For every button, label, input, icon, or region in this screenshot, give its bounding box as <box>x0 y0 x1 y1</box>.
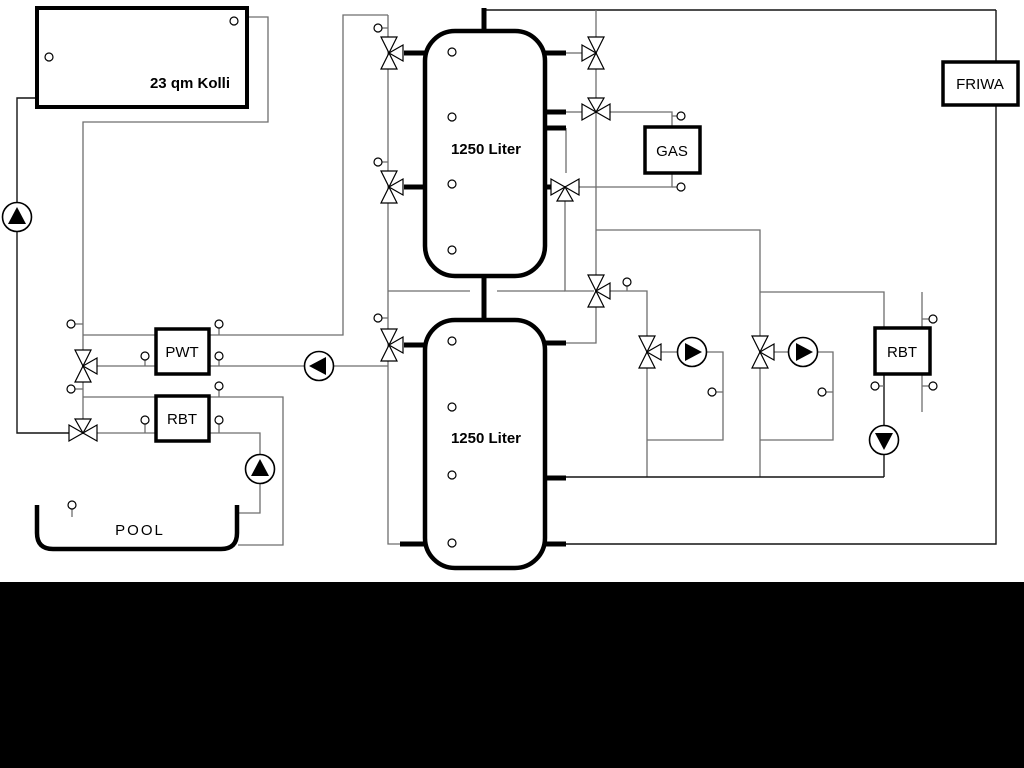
temperature-sensor-icon <box>677 112 685 120</box>
rbt-right-supply-pipe <box>760 292 884 328</box>
temperature-sensor-icon <box>448 471 456 479</box>
friwa-loop-pipe <box>566 10 996 544</box>
tank-bottom-label: 1250 Liter <box>451 430 521 447</box>
temperature-sensor-icon <box>374 24 382 32</box>
temperature-sensor-icon <box>45 53 53 61</box>
temperature-sensor-icon <box>141 416 149 424</box>
temperature-sensor-icon <box>871 382 879 390</box>
three-way-valve-circuit2-icon <box>752 336 774 368</box>
gas-return-pipe <box>579 173 672 187</box>
schematic-page: 23 qm Kolli 1250 Liter 1250 Liter GAS FR… <box>0 0 1024 768</box>
rbt-right-label: RBT <box>887 344 917 361</box>
temperature-sensor-icon <box>448 113 456 121</box>
temperature-sensor-icon <box>215 382 223 390</box>
temperature-sensor-icon <box>67 320 75 328</box>
solar-collector-box <box>37 8 247 107</box>
solar-return-pipe <box>17 98 69 433</box>
temperature-sensor-icon <box>374 158 382 166</box>
three-way-valve-tank1-bottom-left-icon <box>381 171 403 203</box>
collector-label: 23 qm Kolli <box>150 75 230 92</box>
gas-flow-pipe <box>610 112 672 127</box>
three-way-valve-solar-pwt-icon <box>75 350 97 382</box>
three-way-valve-tank2-top-left-icon <box>381 329 403 361</box>
solar-pump-icon <box>3 203 32 232</box>
three-way-valve-circuit1-icon <box>639 336 661 368</box>
temperature-sensor-icon <box>448 403 456 411</box>
heating-schematic-diagram: 23 qm Kolli 1250 Liter 1250 Liter GAS FR… <box>0 0 1024 768</box>
tank-top-label: 1250 Liter <box>451 141 521 158</box>
three-way-valve-tank1-top-left-icon <box>381 37 403 69</box>
temperature-sensor-icon <box>623 278 631 286</box>
temperature-sensor-icon <box>677 183 685 191</box>
temperature-sensor-icon <box>68 501 76 509</box>
component-boxes <box>37 8 1018 568</box>
circuit1-pump-icon <box>678 338 707 367</box>
pwt-pump-icon <box>305 352 334 381</box>
left-riser-pipe <box>388 15 404 544</box>
pool-pump-icon <box>246 455 275 484</box>
friwa-label: FRIWA <box>956 76 1004 93</box>
temperature-sensor-icon <box>215 320 223 328</box>
temperature-sensor-icon <box>929 382 937 390</box>
circuit2-supply-pipe <box>596 230 760 336</box>
temperature-sensor-icon <box>448 246 456 254</box>
three-way-valve-tank1-top-right-icon <box>582 37 604 69</box>
rbt-right-pump-icon <box>870 426 899 455</box>
pool-label: POOL <box>115 522 165 539</box>
three-way-valve-gas-return-icon <box>551 179 579 201</box>
temperature-sensor-icon <box>448 539 456 547</box>
valve-d-tank2-link <box>566 307 596 343</box>
gas-boiler-label: GAS <box>656 143 688 160</box>
temperature-sensor-icon <box>215 416 223 424</box>
pwt-label: PWT <box>165 344 198 361</box>
temperature-sensor-icon <box>708 388 716 396</box>
temperature-sensor-icon <box>215 352 223 360</box>
temperature-sensor-icon <box>67 385 75 393</box>
rbt-left-label: RBT <box>167 411 197 428</box>
circuit1-supply-pipe <box>610 291 647 336</box>
temperature-sensor-icon <box>141 352 149 360</box>
three-way-valve-solar-rbt-icon <box>69 419 97 441</box>
temperature-sensor-icon <box>448 180 456 188</box>
temperature-sensor-icon <box>448 48 456 56</box>
temperature-sensor-icon <box>448 337 456 345</box>
circuit2-pump-icon <box>789 338 818 367</box>
temperature-sensor-icon <box>230 17 238 25</box>
footer-black-band <box>0 582 1024 768</box>
temperature-sensor-icon <box>929 315 937 323</box>
temperature-sensor-icon <box>818 388 826 396</box>
temperature-sensor-icon <box>374 314 382 322</box>
